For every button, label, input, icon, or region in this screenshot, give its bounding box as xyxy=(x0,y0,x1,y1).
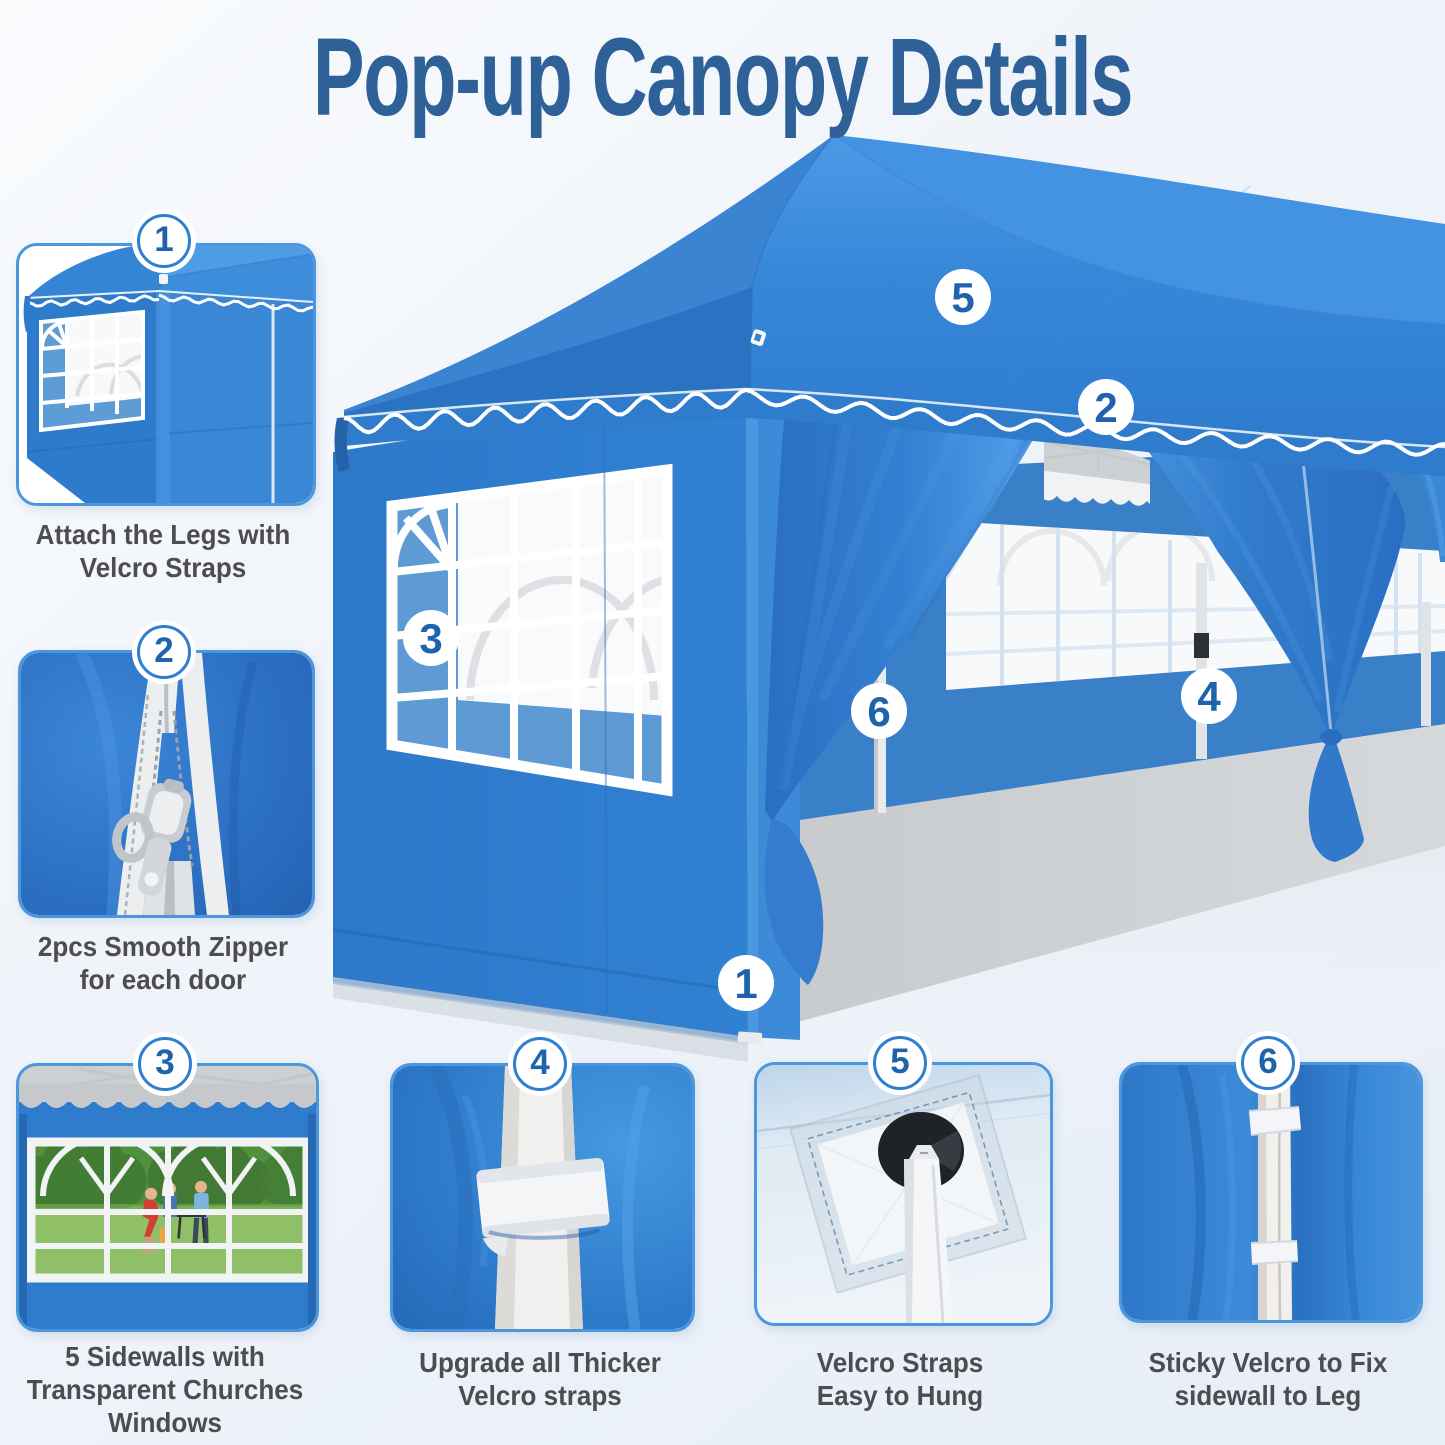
svg-text:3: 3 xyxy=(419,615,442,662)
svg-text:1: 1 xyxy=(734,960,757,1007)
svg-text:4: 4 xyxy=(1197,673,1221,720)
svg-text:2: 2 xyxy=(1094,384,1117,431)
svg-text:6: 6 xyxy=(867,688,890,735)
svg-text:5: 5 xyxy=(951,274,974,321)
